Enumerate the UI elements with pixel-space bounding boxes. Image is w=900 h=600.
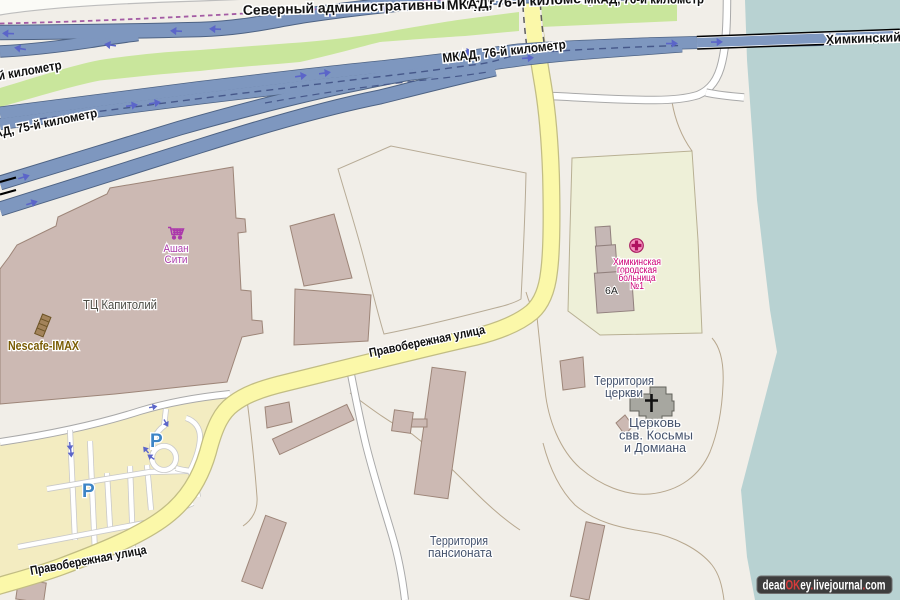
svg-text:церкви: церкви	[605, 386, 643, 400]
svg-text:ТЦ Капитолий: ТЦ Капитолий	[83, 297, 157, 312]
svg-text:6А: 6А	[605, 285, 618, 297]
svg-text:P: P	[82, 481, 95, 502]
svg-text:deadOKey.livejournal.com: deadOKey.livejournal.com	[763, 578, 886, 593]
svg-text:и Домиана: и Домиана	[624, 441, 686, 455]
svg-text:Сити: Сити	[165, 254, 188, 266]
svg-text:Nescafe-IMAX: Nescafe-IMAX	[8, 339, 80, 353]
svg-text:пансионата: пансионата	[428, 546, 492, 560]
svg-text:Химкинский мост: Химкинский мост	[826, 28, 900, 47]
svg-text:МКАД, 76-й километр: МКАД, 76-й километр	[584, 0, 704, 7]
svg-text:P: P	[150, 431, 163, 452]
svg-text:№1: №1	[630, 281, 644, 292]
